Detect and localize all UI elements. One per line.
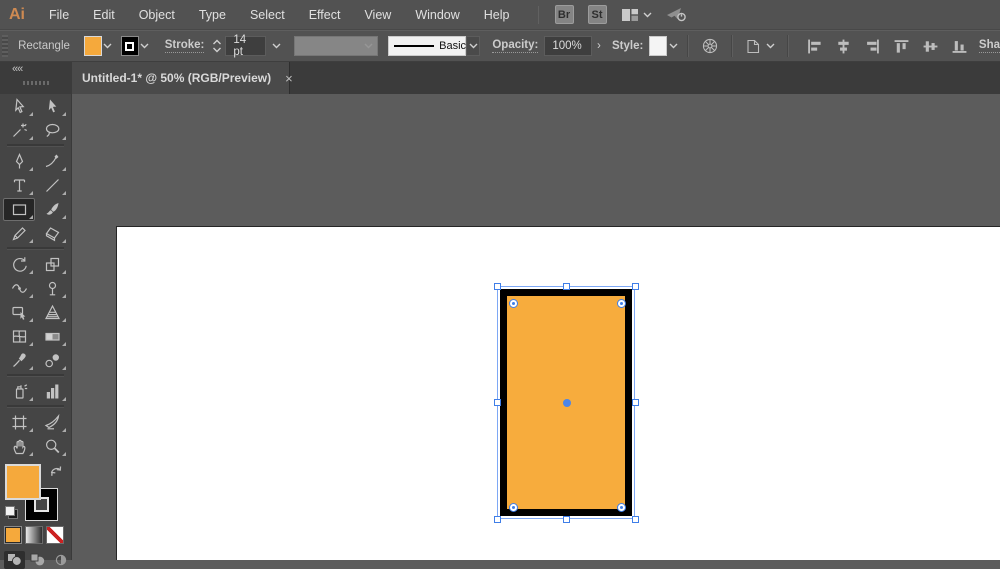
flyout-indicator [29, 428, 33, 432]
color-button[interactable] [4, 526, 22, 544]
tool-artboard[interactable] [3, 411, 35, 434]
tool-zoom[interactable] [36, 435, 68, 458]
context-label: Rectangle [18, 40, 70, 52]
fill-stroke-cluster [0, 462, 71, 524]
tool-curvature[interactable] [36, 150, 68, 173]
handle-bottom-right[interactable] [632, 516, 639, 523]
flyout-indicator [62, 294, 66, 298]
flyout-indicator [62, 270, 66, 274]
tool-column-graph[interactable] [36, 380, 68, 403]
menu-select[interactable]: Select [238, 0, 297, 30]
flyout-indicator [62, 452, 66, 456]
menu-object[interactable]: Object [127, 0, 187, 30]
menu-items: FileEditObjectTypeSelectEffectViewWindow… [37, 0, 522, 30]
flyout-indicator [62, 366, 66, 370]
toolbar-divider [7, 144, 64, 147]
tool-eyedropper[interactable] [3, 349, 35, 372]
tool-line-segment[interactable] [36, 174, 68, 197]
menu-view[interactable]: View [352, 0, 403, 30]
flyout-indicator [62, 215, 66, 219]
toolbar-header: «« [0, 62, 72, 94]
flyout-indicator [29, 294, 33, 298]
menubar-separator [538, 6, 539, 24]
tab-strip: «« Untitled-1* @ 50% (RGB/Preview) × [0, 62, 1000, 94]
tool-shape-builder[interactable] [3, 301, 35, 324]
tool-rotate[interactable] [3, 253, 35, 276]
align-right-icon[interactable] [865, 39, 880, 54]
spinner-up-icon [212, 39, 222, 45]
document-tab-title: Untitled-1* @ 50% (RGB/Preview) [82, 71, 271, 85]
flyout-indicator [29, 136, 33, 140]
swap-fill-stroke-icon[interactable] [49, 465, 63, 478]
collapse-panel-icon[interactable]: «« [12, 63, 22, 75]
align-h-center-icon[interactable] [836, 39, 851, 54]
flyout-indicator [62, 397, 66, 401]
handle-top-right[interactable] [632, 283, 639, 290]
flyout-indicator [29, 342, 33, 346]
controlbar-grip[interactable] [2, 35, 8, 57]
flyout-indicator [62, 112, 66, 116]
flyout-indicator [62, 239, 66, 243]
basic-brush-stroke-preview [394, 45, 434, 48]
tool-hand[interactable] [3, 435, 35, 458]
corner-radius-widget[interactable] [509, 503, 518, 512]
flyout-indicator [62, 318, 66, 322]
tool-perspective-grid[interactable] [36, 301, 68, 324]
stroke-weight-dropdown[interactable] [270, 36, 284, 56]
draw-inside-button[interactable] [50, 551, 71, 569]
chevron-down-icon [766, 43, 775, 49]
handle-bottom-center[interactable] [563, 516, 570, 523]
handle-top-left[interactable] [494, 283, 501, 290]
canvas-workspace[interactable] [0, 94, 1000, 560]
flyout-indicator [29, 239, 33, 243]
menu-effect[interactable]: Effect [297, 0, 353, 30]
flyout-indicator [29, 191, 33, 195]
workspace-switcher-icon [621, 8, 639, 22]
tools-panel [0, 94, 72, 560]
stroke-swatch-hole [125, 42, 134, 51]
align-v-center-icon[interactable] [923, 39, 938, 54]
tool-width[interactable] [3, 277, 35, 300]
toolbar-divider [7, 405, 64, 408]
color-mode-buttons [0, 526, 71, 545]
bridge-button[interactable]: Br [555, 5, 574, 24]
align-buttons [807, 39, 967, 54]
handle-bottom-left[interactable] [494, 516, 501, 523]
menu-type[interactable]: Type [187, 0, 238, 30]
flyout-indicator [62, 428, 66, 432]
tool-puppet-warp[interactable] [36, 277, 68, 300]
tool-symbol-sprayer[interactable] [3, 380, 35, 403]
draw-behind-button[interactable] [27, 551, 48, 569]
default-fill-stroke-icon[interactable] [5, 506, 18, 519]
controlbar-separator [731, 35, 733, 57]
stroke-color-swatch[interactable] [121, 36, 139, 56]
menu-file[interactable]: File [37, 0, 81, 30]
align-left-icon[interactable] [807, 39, 822, 54]
corner-radius-widget[interactable] [617, 503, 626, 512]
flyout-indicator [29, 215, 33, 219]
menu-window[interactable]: Window [403, 0, 471, 30]
corner-radius-widget[interactable] [509, 299, 518, 308]
tool-slice[interactable] [36, 411, 68, 434]
stroke-dropdown-button[interactable] [139, 36, 151, 56]
tool-selection[interactable] [3, 95, 35, 118]
tool-paintbrush[interactable] [36, 198, 68, 221]
tool-pencil[interactable] [3, 222, 35, 245]
tool-rectangle[interactable] [3, 198, 35, 221]
menu-bar: Ai FileEditObjectTypeSelectEffectViewWin… [0, 0, 1000, 30]
illustrator-logo: Ai [9, 6, 25, 24]
flyout-indicator [62, 191, 66, 195]
tool-direct-selection[interactable] [36, 95, 68, 118]
stroke-weight-field[interactable]: 14 pt [225, 36, 265, 56]
close-tab-icon[interactable]: × [285, 72, 293, 85]
fill-swatch[interactable] [5, 464, 41, 500]
tool-eraser[interactable] [36, 222, 68, 245]
align-bottom-icon[interactable] [952, 39, 967, 54]
flyout-indicator [29, 167, 33, 171]
drawing-mode-buttons [0, 551, 71, 569]
shape-label-truncated[interactable]: Sha [979, 39, 1000, 53]
corner-radius-widget[interactable] [617, 299, 626, 308]
recolor-artwork-icon[interactable] [697, 37, 723, 55]
tool-gradient[interactable] [36, 325, 68, 348]
menubar-right-cluster: Br St [538, 5, 688, 24]
controlbar-separator [687, 35, 689, 57]
flyout-indicator [29, 366, 33, 370]
control-bar: Rectangle Stroke: 14 pt Basic Opacity: 1… [0, 30, 1000, 62]
selection-bounding-box[interactable] [497, 286, 635, 519]
flyout-indicator [29, 452, 33, 456]
controlbar-separator [787, 35, 789, 57]
flyout-indicator [29, 318, 33, 322]
stroke-label[interactable]: Stroke: [165, 39, 205, 53]
document-tab[interactable]: Untitled-1* @ 50% (RGB/Preview) × [72, 62, 290, 94]
flyout-indicator [29, 397, 33, 401]
graphic-style-swatch[interactable] [649, 36, 667, 56]
tool-blend[interactable] [36, 349, 68, 372]
tool-lasso[interactable] [36, 119, 68, 142]
flyout-indicator [29, 112, 33, 116]
brush-dropdown-button[interactable] [466, 36, 480, 56]
menu-edit[interactable]: Edit [81, 0, 127, 30]
share-icon[interactable] [666, 6, 688, 23]
workspace-switcher[interactable] [621, 8, 652, 22]
tool-magic-wand[interactable] [3, 119, 35, 142]
stroke-weight-stepper[interactable] [212, 39, 222, 53]
draw-normal-button[interactable] [4, 551, 25, 569]
brush-definition-dropdown[interactable]: Basic [388, 36, 466, 56]
flyout-indicator [62, 342, 66, 346]
opacity-label[interactable]: Opacity: [492, 39, 538, 53]
brush-name: Basic [439, 40, 466, 52]
none-button[interactable] [46, 526, 64, 544]
handle-top-center[interactable] [563, 283, 570, 290]
flyout-indicator [62, 167, 66, 171]
spinner-down-icon [212, 47, 222, 53]
fill-color-swatch[interactable] [84, 36, 102, 56]
tool-type[interactable] [3, 174, 35, 197]
chevron-down-icon [643, 12, 652, 18]
flyout-indicator [29, 270, 33, 274]
toolbar-divider [7, 247, 64, 250]
handle-mid-left[interactable] [494, 399, 501, 406]
variable-width-profile-dropdown[interactable] [294, 36, 378, 56]
tool-scale[interactable] [36, 253, 68, 276]
style-dropdown-button[interactable] [667, 36, 679, 56]
toolbar-divider [7, 374, 64, 377]
gradient-button[interactable] [25, 526, 43, 544]
align-top-icon[interactable] [894, 39, 909, 54]
document-setup-icon[interactable] [741, 38, 779, 55]
opacity-field[interactable]: 100% [544, 36, 591, 56]
tool-pen[interactable] [3, 150, 35, 173]
handle-mid-right[interactable] [632, 399, 639, 406]
opacity-more-button[interactable]: › [592, 36, 606, 56]
tool-mesh[interactable] [3, 325, 35, 348]
flyout-indicator [62, 136, 66, 140]
fill-dropdown-button[interactable] [102, 36, 114, 56]
toolbar-grip[interactable] [23, 81, 49, 85]
style-label: Style: [612, 40, 643, 52]
menu-help[interactable]: Help [472, 0, 522, 30]
stock-button[interactable]: St [588, 5, 607, 24]
object-center-point[interactable] [563, 399, 571, 407]
